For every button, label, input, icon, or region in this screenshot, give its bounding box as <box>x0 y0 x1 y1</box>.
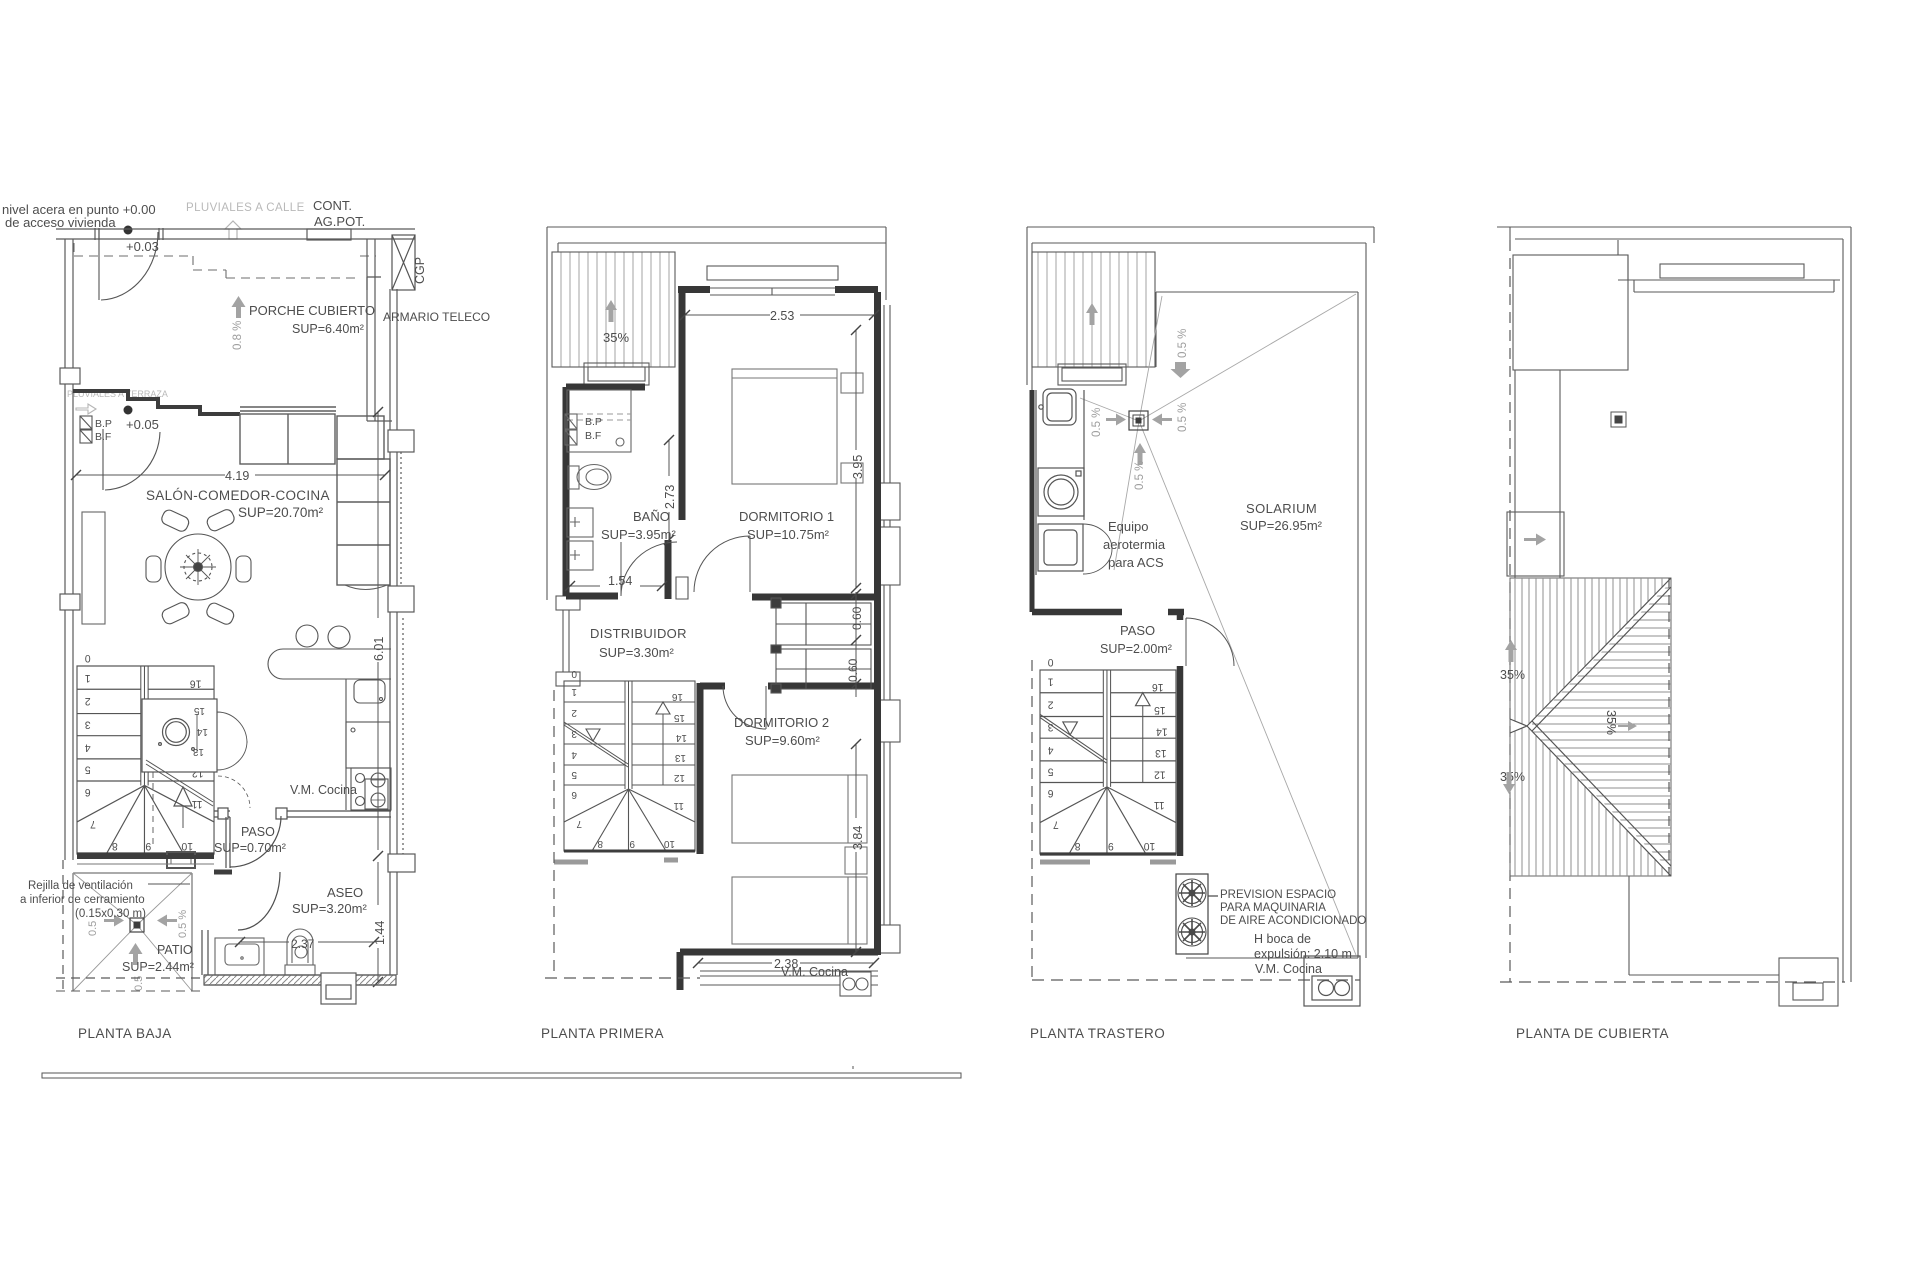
svg-text:H boca de: H boca de <box>1254 932 1311 946</box>
svg-text:a inferior de cerramiento: a inferior de cerramiento <box>20 894 145 906</box>
svg-text:V.M. Cocina: V.M. Cocina <box>290 783 357 797</box>
svg-text:SALÓN-COMEDOR-COCINA: SALÓN-COMEDOR-COCINA <box>146 488 330 503</box>
svg-text:14: 14 <box>196 726 208 737</box>
svg-text:B.P: B.P <box>585 416 602 428</box>
svg-text:SUP=0.70m²: SUP=0.70m² <box>214 841 286 855</box>
svg-text:V.M. Cocina: V.M. Cocina <box>1255 962 1322 976</box>
svg-text:CONT.: CONT. <box>313 198 352 213</box>
svg-text:PLANTA DE CUBIERTA: PLANTA DE CUBIERTA <box>1516 1026 1669 1041</box>
svg-text:+0.05: +0.05 <box>126 417 159 432</box>
svg-text:SOLARIUM: SOLARIUM <box>1246 501 1317 516</box>
svg-text:PATIO: PATIO <box>157 943 193 957</box>
svg-text:0.5 %: 0.5 % <box>1177 403 1189 432</box>
svg-text:SUP=26.95m²: SUP=26.95m² <box>1240 518 1323 533</box>
svg-text:SUP=20.70m²: SUP=20.70m² <box>238 505 324 520</box>
svg-text:ARMARIO TELECO: ARMARIO TELECO <box>383 310 490 324</box>
svg-text:0.60: 0.60 <box>850 606 864 630</box>
svg-text:DORMITORIO 2: DORMITORIO 2 <box>734 715 829 730</box>
svg-text:PLUVIALES A CALLE: PLUVIALES A CALLE <box>186 202 305 214</box>
svg-text:SUP=3.30m²: SUP=3.30m² <box>599 645 674 660</box>
svg-text:B.P: B.P <box>95 418 112 430</box>
svg-text:SUP=3.95m²: SUP=3.95m² <box>601 527 676 542</box>
svg-text:SUP=3.20m²: SUP=3.20m² <box>292 901 367 916</box>
svg-text:AG.POT.: AG.POT. <box>314 214 365 229</box>
svg-text:CGP: CGP <box>413 257 427 284</box>
svg-text:15: 15 <box>193 705 205 716</box>
svg-text:SUP=2.00m²: SUP=2.00m² <box>1100 642 1172 656</box>
svg-text:1.44: 1.44 <box>373 921 387 945</box>
svg-text:ASEO: ASEO <box>327 885 363 900</box>
svg-text:PLANTA BAJA: PLANTA BAJA <box>78 1026 172 1041</box>
svg-text:0.5 %: 0.5 % <box>1091 408 1103 437</box>
svg-text:2.73: 2.73 <box>663 485 677 509</box>
svg-text:0.5 %: 0.5 % <box>1134 461 1146 490</box>
svg-text:PARA MAQUINARIA: PARA MAQUINARIA <box>1220 902 1326 914</box>
svg-text:0.60: 0.60 <box>846 658 860 682</box>
svg-text:SUP=6.40m²: SUP=6.40m² <box>292 322 364 336</box>
svg-text:35%: 35% <box>1500 668 1525 682</box>
svg-text:SUP=10.75m²: SUP=10.75m² <box>747 527 830 542</box>
svg-text:0.5: 0.5 <box>87 921 99 936</box>
svg-text:PLANTA TRASTERO: PLANTA TRASTERO <box>1030 1026 1165 1041</box>
svg-text:de acceso vivienda: de acceso vivienda <box>5 215 116 230</box>
svg-text:35%: 35% <box>603 330 629 345</box>
svg-text:(0.15x0.30 m): (0.15x0.30 m) <box>75 908 146 920</box>
svg-text:Rejilla de ventilación: Rejilla de ventilación <box>28 880 133 892</box>
svg-text:aerotermia: aerotermia <box>1103 537 1166 552</box>
svg-text:PORCHE CUBIERTO: PORCHE CUBIERTO <box>249 303 375 318</box>
svg-text:BAÑO: BAÑO <box>633 509 670 524</box>
svg-text:0.8 %: 0.8 % <box>232 321 244 350</box>
svg-text:V.M. Cocina: V.M. Cocina <box>781 965 848 979</box>
svg-text:para ACS: para ACS <box>1108 555 1164 570</box>
svg-text:0.5 %: 0.5 % <box>1177 329 1189 358</box>
svg-text:2.37: 2.37 <box>291 937 315 951</box>
svg-text:Equipo: Equipo <box>1108 519 1148 534</box>
svg-text:0.5 %: 0.5 % <box>177 910 189 938</box>
svg-text:DORMITORIO 1: DORMITORIO 1 <box>739 509 834 524</box>
svg-text:3.84: 3.84 <box>851 826 865 850</box>
svg-text:PREVISION ESPACIO: PREVISION ESPACIO <box>1220 889 1336 901</box>
svg-text:13: 13 <box>192 746 204 757</box>
svg-text:4.19: 4.19 <box>225 469 249 483</box>
svg-text:35%: 35% <box>1500 770 1525 784</box>
svg-text:2.53: 2.53 <box>770 309 794 323</box>
svg-text:+0.03: +0.03 <box>126 239 159 254</box>
svg-text:3.95: 3.95 <box>851 455 865 479</box>
svg-text:DE AIRE ACONDICIONADO: DE AIRE ACONDICIONADO <box>1220 915 1366 927</box>
svg-text:PLANTA PRIMERA: PLANTA PRIMERA <box>541 1026 664 1041</box>
svg-text:SUP=9.60m²: SUP=9.60m² <box>745 733 820 748</box>
svg-text:SUP=2.44m²: SUP=2.44m² <box>122 960 194 974</box>
svg-text:PASO: PASO <box>241 825 275 839</box>
svg-text:DISTRIBUIDOR: DISTRIBUIDOR <box>590 626 687 641</box>
svg-text:B.F: B.F <box>585 430 601 442</box>
svg-text:PASO: PASO <box>1120 623 1155 638</box>
svg-text:1.54: 1.54 <box>608 574 632 588</box>
svg-text:expulsión: 2.10 m: expulsión: 2.10 m <box>1254 947 1352 961</box>
svg-text:35%: 35% <box>1604 710 1618 735</box>
